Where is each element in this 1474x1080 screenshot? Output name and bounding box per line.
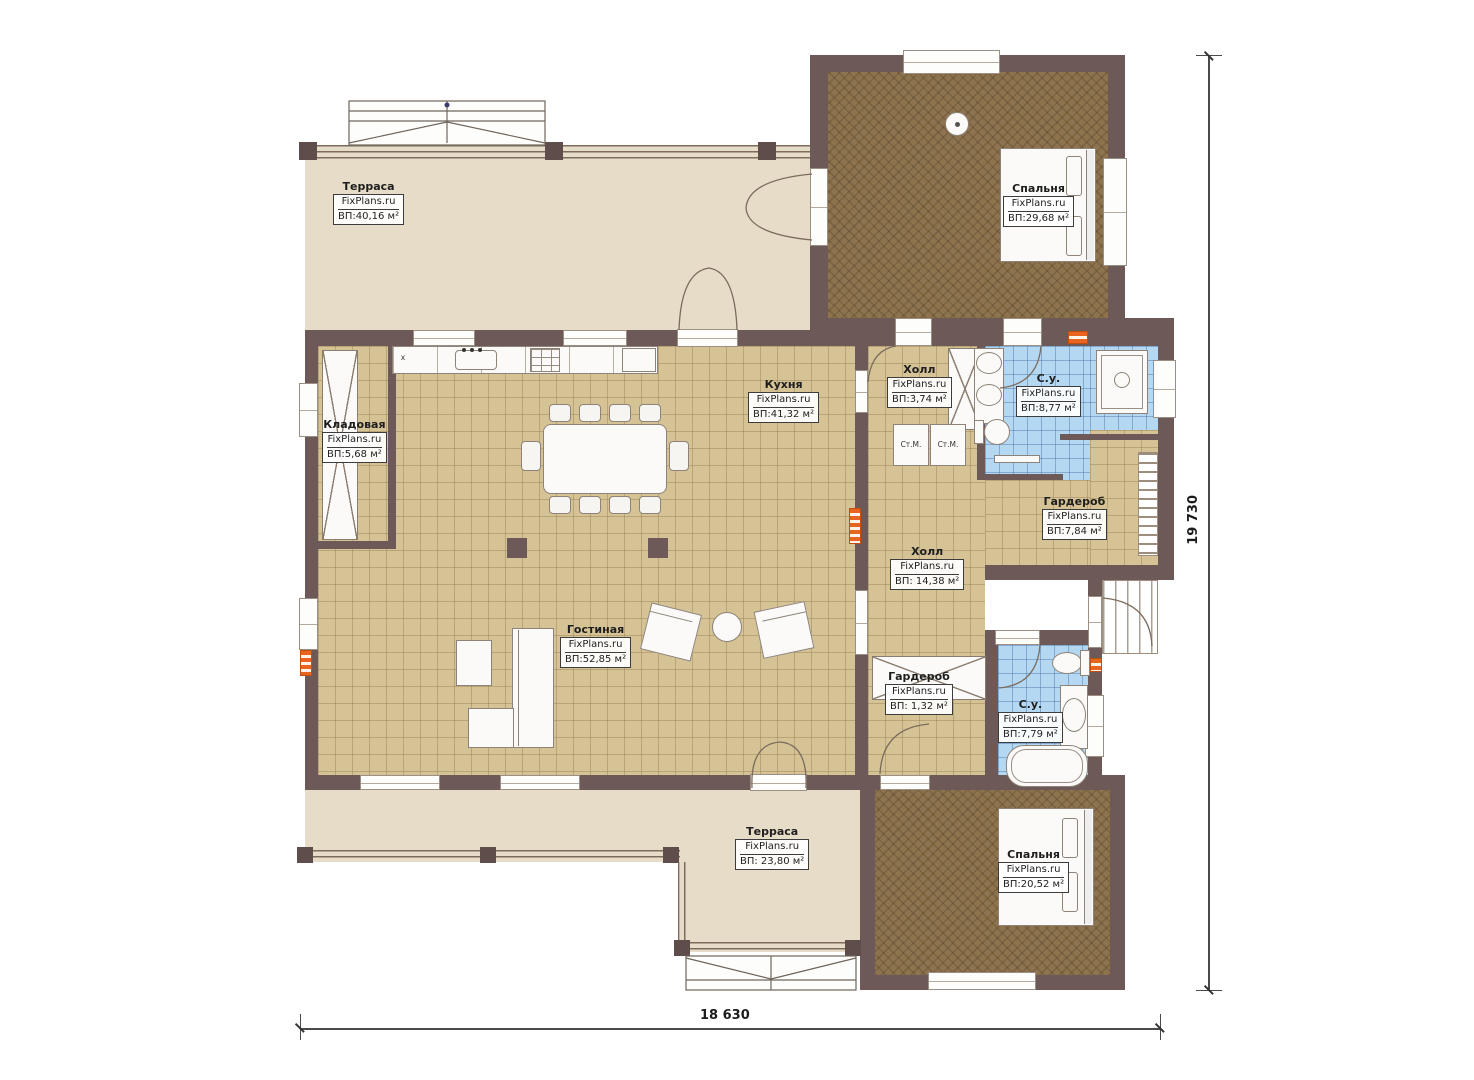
brand-watermark: FixPlans.ru (890, 685, 948, 700)
dimension-width: 18 630 (700, 1008, 750, 1023)
room-area: ВП:20,52 м² (1003, 878, 1064, 892)
room-area: ВП:5,68 м² (327, 448, 382, 462)
awning-and-door-arcs (0, 0, 1474, 1080)
room-label-terrace-bottom: Терраса FixPlans.ru ВП: 23,80 м² (735, 825, 809, 870)
brand-watermark: FixPlans.ru (895, 560, 959, 575)
room-area: ВП: 14,38 м² (895, 575, 959, 589)
room-name: Терраса (735, 825, 809, 838)
brand-watermark: FixPlans.ru (1021, 387, 1076, 402)
brand-watermark: FixPlans.ru (1003, 713, 1058, 728)
room-label-kitchen: Кухня FixPlans.ru ВП:41,32 м² (748, 378, 819, 423)
brand-watermark: FixPlans.ru (892, 378, 947, 393)
door-swing-icon (752, 742, 780, 788)
room-name: Холл (890, 545, 964, 558)
brand-watermark: FixPlans.ru (327, 433, 382, 448)
room-label-terrace-top: Терраса FixPlans.ru ВП:40,16 м² (333, 180, 404, 225)
room-label-wardrobe-small: Гардероб FixPlans.ru ВП: 1,32 м² (885, 670, 953, 715)
awning-icon (686, 956, 856, 990)
room-label-bathroom-bottom: С.у. FixPlans.ru ВП:7,79 м² (998, 698, 1063, 743)
room-area: ВП:29,68 м² (1008, 212, 1069, 226)
door-swing-icon (880, 724, 929, 774)
room-label-bedroom-bottom: Спальня FixPlans.ru ВП:20,52 м² (998, 848, 1069, 893)
door-swing-icon (780, 742, 806, 788)
awning-icon (349, 101, 545, 145)
room-area: ВП: 1,32 м² (890, 700, 948, 714)
room-area: ВП:8,77 м² (1021, 402, 1076, 416)
room-name: Гардероб (885, 670, 953, 683)
brand-watermark: FixPlans.ru (565, 638, 626, 653)
door-swing-icon (999, 645, 1040, 688)
room-area: ВП:41,32 м² (753, 408, 814, 422)
brand-watermark: FixPlans.ru (1008, 197, 1069, 212)
room-name: Кладовая (322, 418, 387, 431)
door-swing-icon (679, 268, 709, 330)
door-swing-icon (709, 268, 737, 330)
room-label-bathroom-top: С.у. FixPlans.ru ВП:8,77 м² (1016, 372, 1081, 417)
door-swing-icon (746, 208, 812, 240)
room-label-bedroom-top: Спальня FixPlans.ru ВП:29,68 м² (1003, 182, 1074, 227)
room-area: ВП:40,16 м² (338, 210, 399, 224)
brand-watermark: FixPlans.ru (753, 393, 814, 408)
room-name: Гостиная (560, 623, 631, 636)
room-label-living: Гостиная FixPlans.ru ВП:52,85 м² (560, 623, 631, 668)
room-area: ВП:7,84 м² (1047, 525, 1102, 539)
room-name: Холл (887, 363, 952, 376)
brand-watermark: FixPlans.ru (338, 195, 399, 210)
brand-watermark: FixPlans.ru (1047, 510, 1102, 525)
floor-plan: x Ст.М. Ст.М. (0, 0, 1474, 1080)
brand-watermark: FixPlans.ru (740, 840, 804, 855)
room-name: Спальня (998, 848, 1069, 861)
door-swing-icon (746, 174, 812, 208)
room-name: Терраса (333, 180, 404, 193)
room-label-hall-top: Холл FixPlans.ru ВП:3,74 м² (887, 363, 952, 408)
room-area: ВП:3,74 м² (892, 393, 947, 407)
room-area: ВП:52,85 м² (565, 653, 626, 667)
room-name: С.у. (998, 698, 1063, 711)
dimension-height: 19 730 (1186, 495, 1201, 545)
door-swing-icon (1103, 598, 1152, 646)
room-area: ВП: 23,80 м² (740, 855, 804, 869)
brand-watermark: FixPlans.ru (1003, 863, 1064, 878)
room-name: Спальня (1003, 182, 1074, 195)
room-label-hall-main: Холл FixPlans.ru ВП: 14,38 м² (890, 545, 964, 590)
room-label-storage: Кладовая FixPlans.ru ВП:5,68 м² (322, 418, 387, 463)
room-label-wardrobe-top: Гардероб FixPlans.ru ВП:7,84 м² (1042, 495, 1107, 540)
room-area: ВП:7,79 м² (1003, 728, 1058, 742)
room-name: Гардероб (1042, 495, 1107, 508)
room-name: Кухня (748, 378, 819, 391)
room-name: С.у. (1016, 372, 1081, 385)
